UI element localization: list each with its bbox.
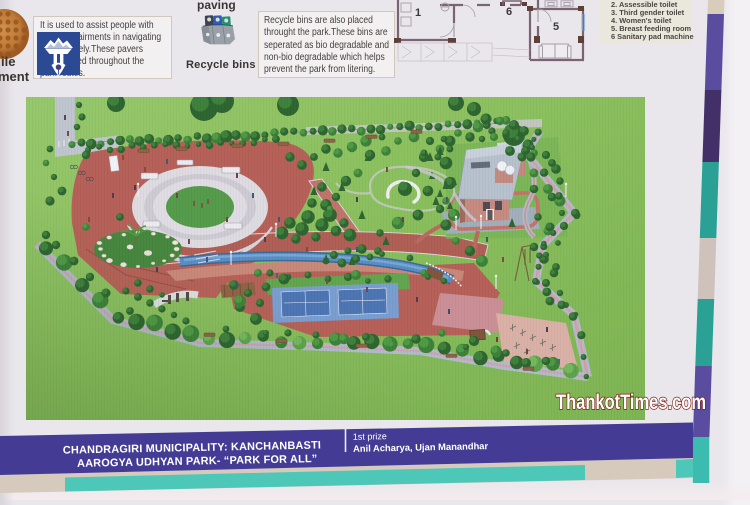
- svg-text:6: 6: [506, 6, 512, 18]
- svg-text:1st prize: 1st prize: [353, 431, 387, 442]
- svg-text:Anil Acharya, Ujan Manandhar: Anil Acharya, Ujan Manandhar: [353, 440, 489, 454]
- svg-text:CHANDRAGIRI MUNICIPALITY: KANC: CHANDRAGIRI MUNICIPALITY: KANCHANBASTI: [63, 439, 321, 456]
- svg-text:AAROGYA UDHYAN PARK- “PARK FOR: AAROGYA UDHYAN PARK- “PARK FOR ALL”: [77, 453, 318, 470]
- svg-text:5: 5: [553, 21, 559, 33]
- svg-text:1: 1: [415, 7, 421, 19]
